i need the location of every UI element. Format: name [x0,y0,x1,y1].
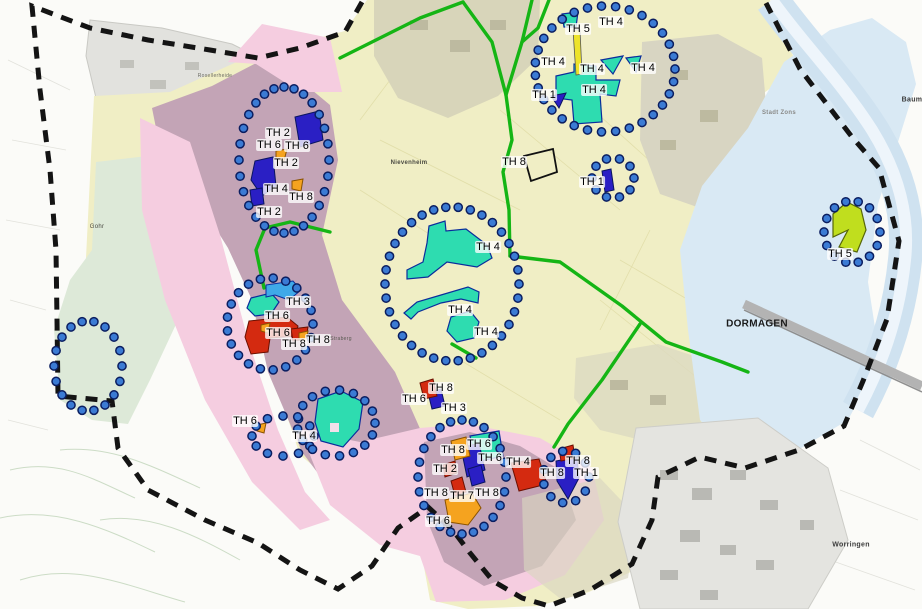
planning-map: TH 5TH 4TH 4TH 4TH 4TH 1TH 4TH 8TH 1TH 2… [0,0,922,609]
circle-dot [244,280,252,288]
circle-dot [854,198,862,206]
circle-dot [638,11,646,19]
circle-dot [299,222,307,230]
circle-dot [842,198,850,206]
circle-dot [534,46,542,54]
circle-dot [361,441,369,449]
site-label: TH 6 [477,452,503,464]
town-label: Baum [902,97,922,104]
circle-dot [630,174,638,182]
site-label: TH 6 [284,140,310,152]
circle-dot [78,318,86,326]
site-label: TH 6 [401,393,427,405]
circle-dot [361,397,369,405]
site-label: TH 6 [466,438,492,450]
circle-dot [349,389,357,397]
circle-dot [234,351,242,359]
circle-dot [671,65,679,73]
site-label: TH 4 [579,63,605,75]
site-label: TH 8 [305,334,331,346]
circle-dot [570,8,578,16]
circle-dot [321,387,329,395]
circle-dot [321,451,329,459]
circle-dot [830,204,838,212]
circle-dot [612,127,620,135]
site-polygon-notch [330,423,339,432]
circle-dot [52,377,60,385]
circle-dot [349,448,357,456]
site-label: TH 8 [565,455,591,467]
circle-dot [531,71,539,79]
site-label: TH 8 [539,467,565,479]
circle-dot [385,308,393,316]
circle-dot [489,513,497,521]
site-label: TH 4 [540,56,566,68]
circle-dot [592,162,600,170]
circle-dot [638,118,646,126]
circle-dot [583,126,591,134]
circle-dot [514,294,522,302]
site-label: TH 6 [264,310,290,322]
site-label: TH 4 [291,430,317,442]
circle-dot [263,449,271,457]
circle-dot [279,452,287,460]
circle-dot [420,501,428,509]
town-label: Stadt Zons [762,110,796,116]
circle-dot [531,59,539,67]
circle-dot [615,155,623,163]
circle-dot [256,275,264,283]
site-label: TH 6 [256,139,282,151]
circle-dot [269,366,277,374]
site-label: TH 8 [501,156,527,168]
circle-dot [315,201,323,209]
site-label: TH 4 [581,84,607,96]
circle-dot [625,124,633,132]
circle-dot [418,349,426,357]
site-label: TH 4 [263,183,289,195]
circle-dot [570,122,578,130]
site-label: TH 1 [573,467,599,479]
circle-dot [820,228,828,236]
circle-dot [116,347,124,355]
circle-dot [548,24,556,32]
circle-dot [270,227,278,235]
circle-dot [293,284,301,292]
site-label: TH 6 [232,415,258,427]
site-label: TH 4 [630,62,656,74]
circle-dot [223,327,231,335]
circle-dot [101,323,109,331]
circle-dot [336,386,344,394]
town-label: Nievenheim [391,160,428,166]
circle-dot [478,211,486,219]
circle-dot [236,172,244,180]
site-label: TH 5 [565,23,591,35]
circle-dot [110,333,118,341]
circle-dot [227,340,235,348]
circle-dot [466,354,474,362]
circle-dot [558,15,566,23]
circle-dot [67,401,75,409]
circle-dot [597,128,605,136]
circle-dot [496,501,504,509]
circle-dot [540,480,548,488]
town-label: Straberg [330,336,352,342]
circle-dot [572,497,580,505]
circle-dot [248,432,256,440]
circle-dot [280,83,288,91]
circle-dot [52,347,60,355]
circle-dot [110,391,118,399]
circle-dot [854,258,862,266]
circle-dot [252,99,260,107]
circle-dot [658,101,666,109]
circle-dot [260,222,268,230]
circle-dot [670,78,678,86]
site-label: TH 8 [428,382,454,394]
circle-dot [658,29,666,37]
town-label: Gohr [90,224,105,230]
circle-dot [480,522,488,530]
circle-dot [466,206,474,214]
circle-dot [308,99,316,107]
circle-dot [308,213,316,221]
site-label: TH 4 [598,16,624,28]
circle-dot [458,416,466,424]
circle-dot [458,530,466,538]
circle-dot [505,239,513,247]
circle-dot [371,419,379,427]
site-label: TH 7 [449,490,475,502]
circle-dot [90,406,98,414]
circle-dot [368,407,376,415]
site-polygon [292,179,303,191]
circle-dot [548,106,556,114]
circle-dot [324,172,332,180]
circle-dot [478,349,486,357]
circle-dot [454,357,462,365]
circle-dot [488,341,496,349]
circle-dot [547,453,555,461]
site-label: TH 8 [474,487,500,499]
circle-dot [391,239,399,247]
circle-dot [294,449,302,457]
circle-dot [244,360,252,368]
circle-dot [382,294,390,302]
circle-dot [58,391,66,399]
circle-dot [325,156,333,164]
site-label: TH 8 [288,191,314,203]
circle-dot [500,488,508,496]
circle-dot [306,422,314,430]
circle-dot [398,332,406,340]
circle-dot [430,206,438,214]
site-label: TH 1 [579,176,605,188]
site-label: TH 2 [273,157,299,169]
circle-dot [315,110,323,118]
circle-dot [454,203,462,211]
circle-dot [447,418,455,426]
circle-dot [260,90,268,98]
circle-dot [469,528,477,536]
circle-dot [515,280,523,288]
circle-dot [239,124,247,132]
circle-dot [299,90,307,98]
circle-dot [245,201,253,209]
circle-dot [430,354,438,362]
site-label: TH 4 [475,241,501,253]
circle-dot [118,362,126,370]
site-label: TH 2 [265,127,291,139]
circle-dot [282,277,290,285]
circle-dot [256,365,264,373]
site-label: TH 4 [473,326,499,338]
circle-dot [67,323,75,331]
circle-dot [398,228,406,236]
circle-dot [469,418,477,426]
circle-dot [236,140,244,148]
circle-dot [293,356,301,364]
site-label: TH 8 [440,444,466,456]
circle-dot [245,110,253,118]
circle-dot [235,156,243,164]
circle-dot [279,412,287,420]
circle-dot [58,333,66,341]
town-label: Rosellerheide [198,73,232,79]
circle-dot [649,19,657,27]
circle-dot [558,115,566,123]
circle-dot [823,214,831,222]
circle-dot [269,274,277,282]
circle-dot [415,458,423,466]
circle-dot [649,111,657,119]
circle-dot [324,140,332,148]
circle-dot [294,413,302,421]
circle-dot [420,444,428,452]
circle-dot [505,320,513,328]
circle-dot [497,228,505,236]
site-label: TH 4 [505,456,531,468]
site-label: TH 8 [281,338,307,350]
site-label: TH 1 [531,89,557,101]
site-label: TH 3 [285,296,311,308]
circle-dot [336,452,344,460]
circle-dot [282,363,290,371]
circle-dot [625,6,633,14]
circle-dot [90,318,98,326]
circle-dot [873,241,881,249]
circle-dot [391,320,399,328]
circle-dot [280,229,288,237]
circle-dot [665,90,673,98]
circle-dot [299,402,307,410]
circle-dot [78,406,86,414]
circle-dot [223,313,231,321]
circle-dot [227,300,235,308]
circle-dot [309,320,317,328]
circle-dot [385,252,393,260]
circle-dot [320,124,328,132]
circle-dot [665,40,673,48]
circle-dot [583,4,591,12]
circle-dot [559,499,567,507]
circle-dot [876,228,884,236]
circle-dot [602,155,610,163]
circle-dot [447,528,455,536]
circle-dot [290,227,298,235]
circle-dot [382,266,390,274]
circle-dot [612,3,620,11]
circle-dot [865,252,873,260]
circle-dot [540,34,548,42]
circle-dot [320,188,328,196]
site-label: TH 8 [423,487,449,499]
circle-dot [101,401,109,409]
circle-dot [308,393,316,401]
circle-dot [239,188,247,196]
circle-dot [510,308,518,316]
circle-dot [308,445,316,453]
site-label: TH 6 [425,515,451,527]
circle-dot [50,362,58,370]
site-label: TH 2 [432,463,458,475]
site-label: TH 3 [441,402,467,414]
circle-dot [510,252,518,260]
circle-dot [581,487,589,495]
site-label: TH 4 [447,304,473,316]
circle-dot [626,162,634,170]
circle-dot [865,204,873,212]
town-label: Worringen [832,542,870,549]
circle-dot [615,193,623,201]
circle-dot [408,341,416,349]
circle-dot [290,85,298,93]
circle-dot [234,289,242,297]
circle-dot [488,219,496,227]
circle-dot [436,424,444,432]
circle-dot [602,193,610,201]
site-label: TH 5 [827,248,853,260]
circle-dot [116,377,124,385]
circle-dot [427,433,435,441]
circle-dot [270,85,278,93]
circle-dot [381,280,389,288]
circle-dot [408,219,416,227]
circle-dot [368,431,376,439]
circle-dot [480,424,488,432]
circle-dot [547,493,555,501]
circle-dot [442,203,450,211]
circle-dot [252,442,260,450]
circle-dot [670,52,678,60]
circle-dot [502,473,510,481]
site-label: TH 2 [256,206,282,218]
circle-dot [442,357,450,365]
circle-dot [263,415,271,423]
circle-dot [597,2,605,10]
circle-dot [873,214,881,222]
circle-dot [418,211,426,219]
circle-dot [626,186,634,194]
circle-dot [414,473,422,481]
town-label: DORMAGEN [726,319,788,330]
circle-dot [514,266,522,274]
